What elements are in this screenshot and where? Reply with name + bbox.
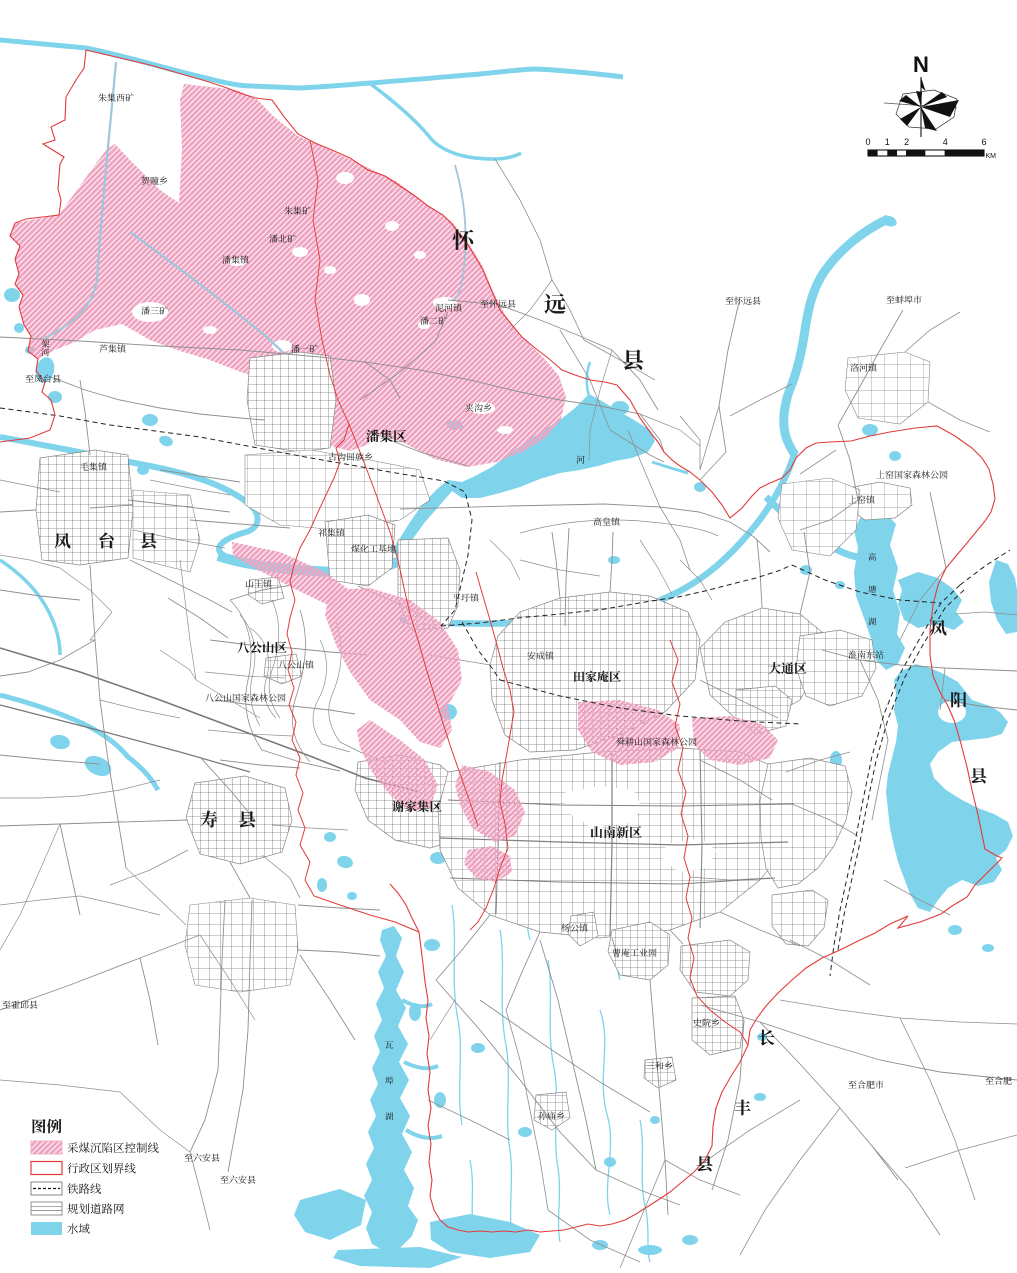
svg-text:N: N bbox=[913, 52, 929, 77]
svg-text:4: 4 bbox=[943, 137, 948, 147]
svg-text:1: 1 bbox=[885, 137, 890, 147]
svg-text:2: 2 bbox=[904, 137, 909, 147]
svg-text:0: 0 bbox=[865, 137, 870, 147]
svg-text:6: 6 bbox=[981, 137, 986, 147]
svg-text:KM: KM bbox=[986, 153, 997, 160]
